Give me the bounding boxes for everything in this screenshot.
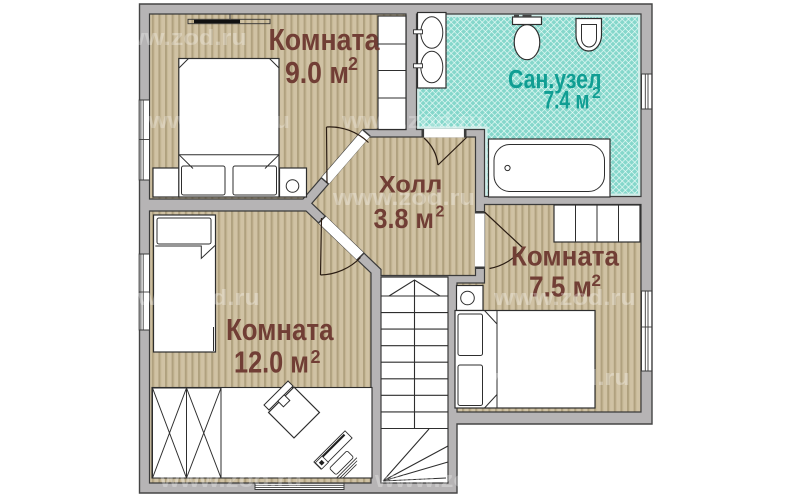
svg-text:www.zod.ru: www.zod.ru [374,467,517,492]
svg-text:2: 2 [592,85,601,102]
svg-text:www.zod.ru: www.zod.ru [104,25,247,50]
svg-text:www.zod.ru: www.zod.ru [159,467,302,492]
svg-text:2: 2 [348,54,358,74]
svg-text:www.zod.ru: www.zod.ru [117,285,260,310]
svg-text:12.0 м: 12.0 м [234,346,309,380]
svg-text:www.zod.ru: www.zod.ru [332,185,475,210]
svg-text:Комната: Комната [511,241,620,272]
svg-text:Комната: Комната [226,313,334,347]
svg-text:Комната: Комната [269,22,381,57]
svg-text:www.zod.ru: www.zod.ru [493,285,636,310]
svg-text:www.zod.ru: www.zod.ru [487,365,630,390]
svg-text:www.zod.ru: www.zod.ru [341,108,484,133]
svg-text:7.4 м: 7.4 м [544,87,590,115]
svg-text:2: 2 [311,347,321,367]
svg-text:9.0 м: 9.0 м [285,55,349,90]
svg-text:www.zod.ru: www.zod.ru [147,108,290,133]
